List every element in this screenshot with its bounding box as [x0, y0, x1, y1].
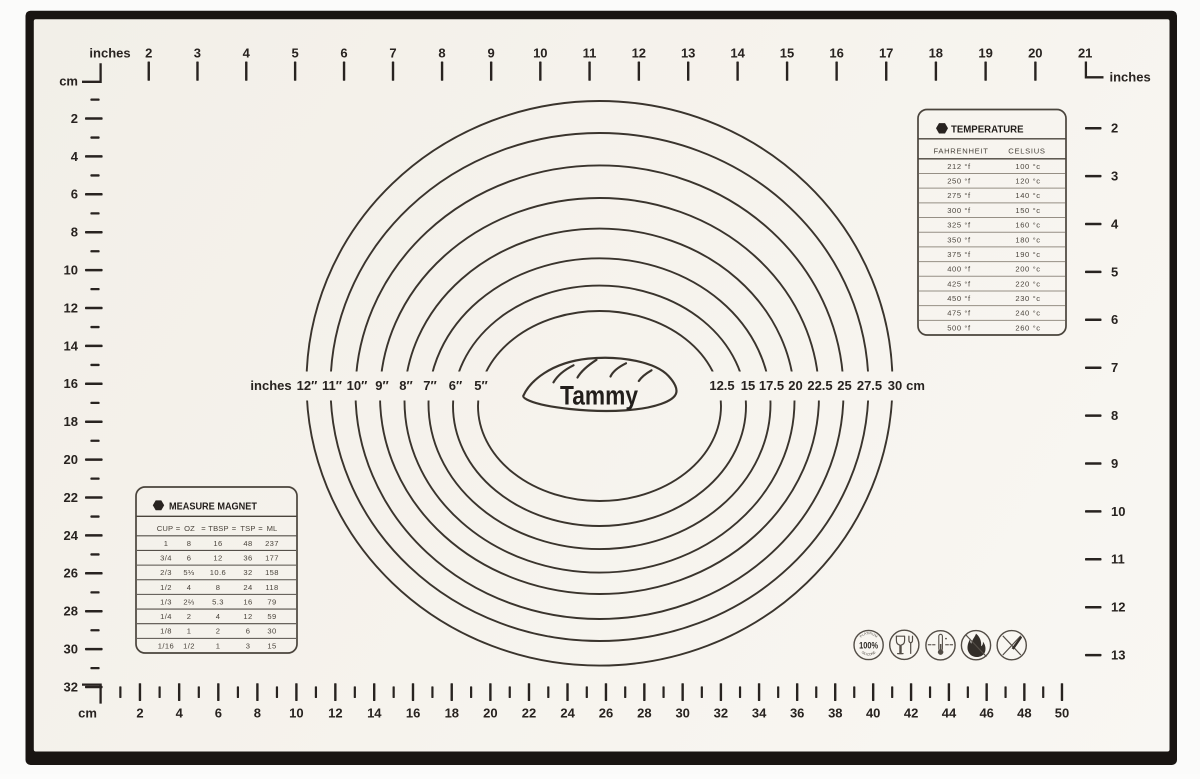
svg-text:inches: inches: [1110, 70, 1151, 85]
svg-text:17.5: 17.5: [759, 378, 784, 393]
svg-text:9: 9: [1111, 456, 1118, 471]
svg-text:8: 8: [71, 225, 78, 240]
svg-text:12.5: 12.5: [709, 378, 734, 393]
svg-text:120 °c: 120 °c: [1015, 177, 1040, 186]
svg-text:325 °f: 325 °f: [947, 221, 971, 230]
svg-text:10: 10: [64, 263, 78, 278]
svg-text:CUP: CUP: [157, 524, 173, 533]
svg-text:28: 28: [64, 604, 78, 619]
svg-text:6: 6: [71, 187, 78, 202]
svg-text:275 °f: 275 °f: [947, 191, 971, 200]
svg-text:1/8: 1/8: [160, 627, 172, 636]
svg-text:36: 36: [243, 554, 252, 563]
svg-text:2⅔: 2⅔: [183, 597, 195, 606]
svg-text:25: 25: [837, 378, 851, 393]
svg-text:10″: 10″: [347, 378, 368, 393]
svg-text:20: 20: [64, 452, 78, 467]
svg-text:15: 15: [267, 641, 276, 650]
svg-text:40: 40: [866, 706, 880, 721]
svg-text:1/16: 1/16: [158, 641, 174, 650]
svg-text:22: 22: [522, 706, 536, 721]
svg-text:38: 38: [828, 706, 842, 721]
svg-text:14: 14: [367, 706, 382, 721]
svg-text:1/2: 1/2: [183, 641, 195, 650]
svg-text:11: 11: [583, 46, 597, 61]
svg-text:10.6: 10.6: [210, 568, 226, 577]
svg-text:4: 4: [187, 583, 192, 592]
svg-text:MEASURE MAGNET: MEASURE MAGNET: [169, 501, 257, 512]
svg-text:24: 24: [64, 528, 79, 543]
svg-text:13: 13: [1111, 648, 1125, 663]
svg-text:20: 20: [788, 378, 802, 393]
svg-text:cm: cm: [906, 378, 925, 393]
svg-text:8: 8: [438, 46, 445, 61]
svg-text:2: 2: [136, 706, 143, 721]
svg-text:22.5: 22.5: [807, 378, 832, 393]
svg-text:150 °c: 150 °c: [1015, 206, 1040, 215]
svg-text:6″: 6″: [449, 378, 462, 393]
svg-text:4: 4: [176, 706, 184, 721]
svg-text:32: 32: [64, 679, 78, 694]
svg-text:10: 10: [289, 706, 303, 721]
svg-text:36: 36: [790, 706, 804, 721]
svg-text:9″: 9″: [375, 378, 388, 393]
svg-text:6: 6: [215, 706, 222, 721]
svg-text:250 °f: 250 °f: [947, 177, 971, 186]
svg-text:cm: cm: [78, 706, 97, 721]
svg-text:8: 8: [254, 706, 261, 721]
svg-text:10: 10: [1111, 504, 1125, 519]
svg-text:21: 21: [1078, 46, 1092, 61]
svg-text:230 °c: 230 °c: [1015, 294, 1040, 303]
svg-text:4: 4: [216, 612, 221, 621]
svg-text:2: 2: [145, 46, 152, 61]
svg-text:300 °f: 300 °f: [947, 206, 971, 215]
svg-text:inches: inches: [250, 378, 291, 393]
svg-text:26: 26: [599, 706, 613, 721]
svg-text:FAHRENHEIT: FAHRENHEIT: [933, 146, 988, 155]
svg-text:16: 16: [406, 706, 420, 721]
svg-text:200 °c: 200 °c: [1015, 265, 1040, 274]
svg-text:100 °c: 100 °c: [1015, 162, 1040, 171]
svg-text:19: 19: [978, 46, 992, 61]
svg-text:260 °c: 260 °c: [1015, 323, 1040, 332]
svg-text:44: 44: [942, 706, 957, 721]
svg-text:Tammy: Tammy: [560, 381, 638, 411]
svg-text:20: 20: [483, 706, 497, 721]
svg-text:7″: 7″: [423, 378, 436, 393]
svg-text:8: 8: [187, 539, 192, 548]
svg-text:12: 12: [328, 706, 342, 721]
svg-text:5⅓: 5⅓: [183, 568, 195, 577]
svg-text:5″: 5″: [474, 378, 487, 393]
svg-text:ML: ML: [267, 524, 278, 533]
svg-text:177: 177: [265, 554, 279, 563]
svg-text:26: 26: [64, 566, 78, 581]
svg-text:8: 8: [1111, 408, 1118, 423]
svg-text:30: 30: [267, 627, 276, 636]
svg-text:160 °c: 160 °c: [1015, 221, 1040, 230]
svg-text:425 °f: 425 °f: [947, 279, 971, 288]
svg-text:46: 46: [979, 706, 993, 721]
svg-text:16: 16: [243, 597, 252, 606]
svg-text:12: 12: [1111, 600, 1125, 615]
svg-text:14: 14: [730, 46, 745, 61]
svg-text:TBSP: TBSP: [208, 524, 228, 533]
svg-text:4: 4: [1111, 216, 1119, 231]
svg-text:16: 16: [213, 539, 222, 548]
svg-text:1/4: 1/4: [160, 612, 172, 621]
svg-text:18: 18: [929, 46, 943, 61]
svg-text:5: 5: [1111, 264, 1118, 279]
svg-text:180 °c: 180 °c: [1015, 235, 1040, 244]
svg-text:12: 12: [213, 554, 222, 563]
svg-text:190 °c: 190 °c: [1015, 250, 1040, 259]
svg-text:158: 158: [265, 568, 279, 577]
svg-text:12: 12: [243, 612, 252, 621]
svg-text:9: 9: [487, 46, 494, 61]
svg-text:3/4: 3/4: [160, 554, 172, 563]
svg-text:18: 18: [445, 706, 459, 721]
svg-text:10: 10: [533, 46, 547, 61]
svg-text:15: 15: [741, 378, 755, 393]
svg-text:500 °f: 500 °f: [947, 323, 971, 332]
svg-text:OZ: OZ: [184, 524, 195, 533]
svg-text:16: 16: [64, 376, 78, 391]
svg-text:8″: 8″: [399, 378, 412, 393]
svg-text:475 °f: 475 °f: [947, 309, 971, 318]
svg-text:=: =: [232, 524, 237, 533]
svg-text:7: 7: [1111, 360, 1118, 375]
svg-text:=: =: [176, 524, 181, 533]
svg-text:28: 28: [637, 706, 651, 721]
svg-text:30: 30: [888, 378, 902, 393]
svg-text:12″: 12″: [297, 378, 318, 393]
svg-text:4: 4: [71, 149, 79, 164]
svg-text:6: 6: [340, 46, 347, 61]
svg-text:CELSIUS: CELSIUS: [1008, 146, 1045, 155]
svg-text:3: 3: [246, 641, 251, 650]
svg-text:cm: cm: [59, 74, 78, 89]
svg-text:16: 16: [829, 46, 843, 61]
svg-text:11: 11: [1111, 552, 1125, 567]
svg-text:2: 2: [187, 612, 192, 621]
svg-text:3: 3: [1111, 169, 1118, 184]
svg-text:48: 48: [1017, 706, 1031, 721]
svg-text:450 °f: 450 °f: [947, 294, 971, 303]
svg-text:237: 237: [265, 539, 279, 548]
svg-text:100%: 100%: [859, 641, 878, 652]
svg-text:2: 2: [216, 627, 221, 636]
svg-text:22: 22: [64, 490, 78, 505]
svg-text:27.5: 27.5: [857, 378, 882, 393]
svg-text:48: 48: [243, 539, 252, 548]
svg-text:8: 8: [216, 583, 221, 592]
svg-text:12: 12: [632, 46, 646, 61]
svg-text:7: 7: [389, 46, 396, 61]
svg-text:240 °c: 240 °c: [1015, 309, 1040, 318]
svg-text:18: 18: [64, 414, 78, 429]
svg-text:400 °f: 400 °f: [947, 265, 971, 274]
svg-text:TEMPERATURE: TEMPERATURE: [951, 125, 1024, 136]
svg-text:6: 6: [1111, 312, 1118, 327]
svg-text:12: 12: [64, 300, 78, 315]
svg-text:14: 14: [64, 338, 79, 353]
svg-text:30: 30: [675, 706, 689, 721]
svg-text:32: 32: [243, 568, 252, 577]
svg-text:inches: inches: [89, 46, 130, 61]
svg-text:79: 79: [267, 597, 276, 606]
svg-text:1: 1: [187, 627, 192, 636]
svg-text:6: 6: [246, 627, 251, 636]
svg-text:4: 4: [243, 46, 251, 61]
svg-text:118: 118: [265, 583, 278, 592]
svg-text:1: 1: [164, 539, 169, 548]
svg-text:375 °f: 375 °f: [947, 250, 971, 259]
svg-text:5.3: 5.3: [212, 597, 224, 606]
svg-text:2: 2: [1111, 121, 1118, 136]
svg-text:220 °c: 220 °c: [1015, 279, 1040, 288]
svg-text:42: 42: [904, 706, 918, 721]
svg-text:24: 24: [243, 583, 252, 592]
svg-text:13: 13: [681, 46, 695, 61]
svg-text:30: 30: [64, 642, 78, 657]
svg-text:6: 6: [187, 554, 192, 563]
svg-text:=: =: [258, 524, 263, 533]
svg-text:5: 5: [291, 46, 298, 61]
svg-text:11″: 11″: [322, 378, 342, 393]
svg-text:17: 17: [879, 46, 893, 61]
svg-text:2: 2: [71, 111, 78, 126]
svg-text:1/2: 1/2: [160, 583, 172, 592]
svg-text:=: =: [201, 524, 206, 533]
svg-text:TSP: TSP: [240, 524, 255, 533]
svg-text:20: 20: [1028, 46, 1042, 61]
svg-text:350 °f: 350 °f: [947, 235, 971, 244]
svg-text:212 °f: 212 °f: [947, 162, 971, 171]
svg-text:1: 1: [216, 641, 221, 650]
svg-text:59: 59: [267, 612, 276, 621]
svg-text:3: 3: [194, 46, 201, 61]
svg-text:24: 24: [560, 706, 575, 721]
svg-text:15: 15: [780, 46, 794, 61]
svg-text:50: 50: [1055, 706, 1069, 721]
svg-text:34: 34: [752, 706, 767, 721]
svg-text:2/3: 2/3: [160, 568, 172, 577]
svg-text:140 °c: 140 °c: [1015, 191, 1040, 200]
svg-text:1/3: 1/3: [160, 597, 172, 606]
svg-text:32: 32: [714, 706, 728, 721]
